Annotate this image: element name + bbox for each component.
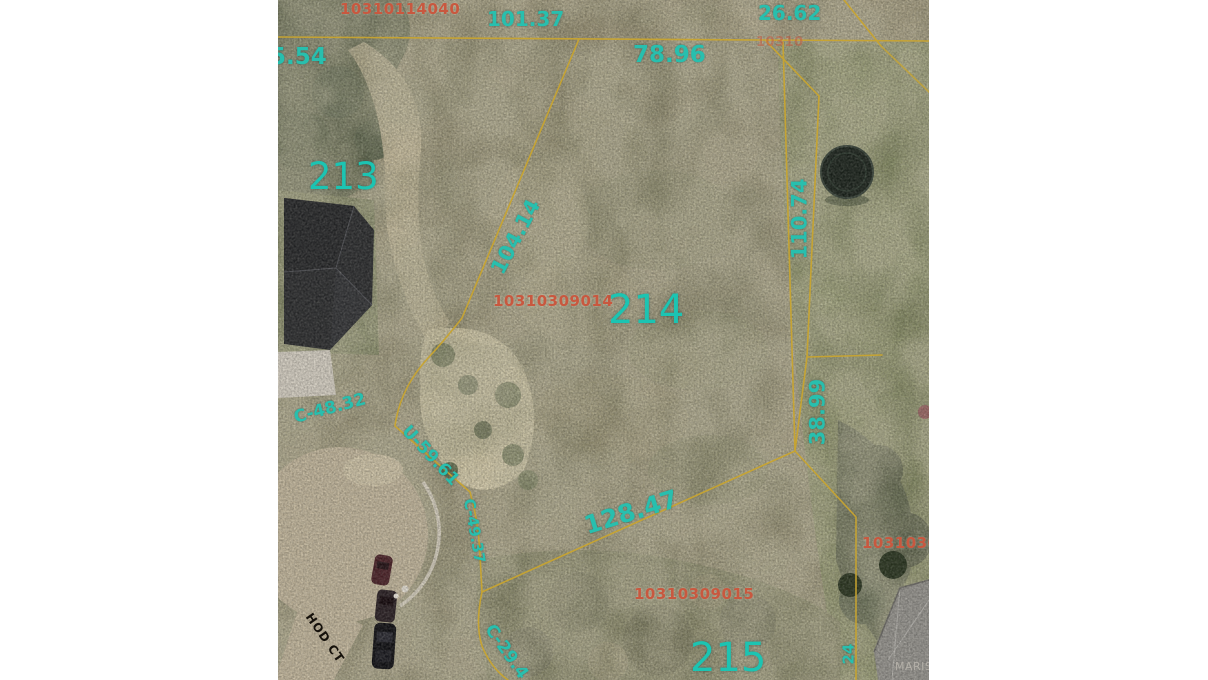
parcel-id-right-edge: 103103090 bbox=[862, 536, 929, 551]
maris-watermark: MARIS bbox=[895, 661, 929, 672]
dimension-110-74: 110.74 bbox=[790, 178, 811, 259]
parcel-number-215: 215 bbox=[690, 638, 766, 678]
dimension-78-96: 78.96 bbox=[633, 44, 706, 67]
dimension-5-54: 5.54 bbox=[278, 46, 327, 69]
parcel-id-10310309014: 10310309014 bbox=[493, 294, 613, 309]
dimension-fragment-right: 24 bbox=[842, 644, 857, 665]
parcel-id-10310309015: 10310309015 bbox=[634, 587, 754, 602]
aerial-imagery bbox=[278, 0, 929, 680]
parcel-number-213: 213 bbox=[308, 158, 379, 195]
parcel-number-214: 214 bbox=[608, 290, 684, 330]
dimension-101-37: 101.37 bbox=[487, 9, 564, 29]
dimension-26-62: 26.62 bbox=[758, 3, 821, 23]
page: 10310114040 101.37 26.62 10310 5.54 213 … bbox=[0, 0, 1208, 680]
parcel-id-fragment-top-right: 10310 bbox=[756, 36, 804, 49]
parcel-id-10310114040: 10310114040 bbox=[340, 2, 460, 17]
dimension-38-99: 38.99 bbox=[808, 379, 829, 445]
aerial-map-viewport[interactable]: 10310114040 101.37 26.62 10310 5.54 213 … bbox=[278, 0, 929, 680]
